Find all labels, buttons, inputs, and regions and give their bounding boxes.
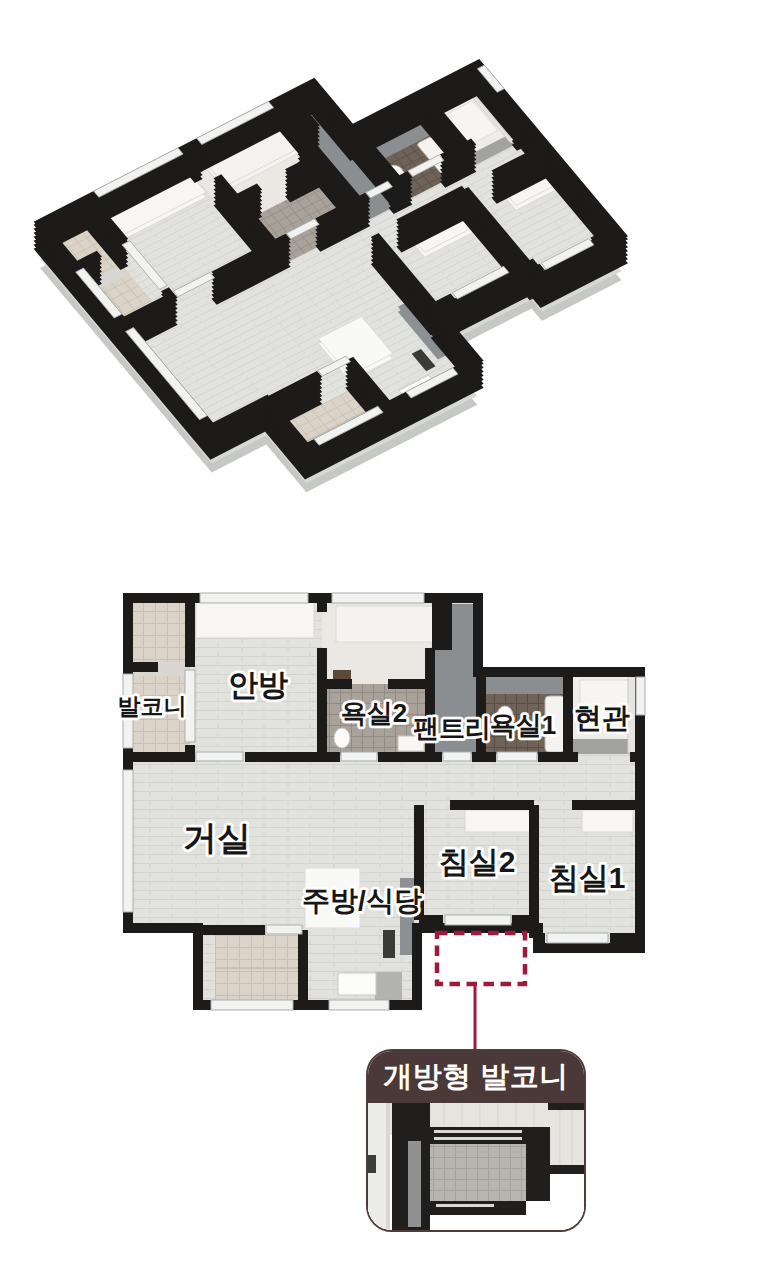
floorplan-3d [34, 13, 658, 520]
callout-inset [368, 1103, 584, 1230]
floorplan-2d: 발코니 안방 욕실2 팬트리 욕실1 현관 거실 주방/식당 침실2 침실1 [118, 593, 646, 1010]
room-label-master-bedroom: 안방 [228, 668, 288, 701]
open-balcony-callout: 개방형 발코니 [366, 1049, 586, 1232]
room-label-bathroom-2: 욕실2 [341, 698, 407, 728]
room-label-pantry: 팬트리 [413, 713, 491, 743]
room-label-bathroom-1: 욕실1 [490, 710, 556, 740]
room-label-entrance: 현관 [574, 702, 630, 733]
room-label-kitchen-dining: 주방/식당 [302, 885, 422, 916]
callout-inset-floorplan [368, 1103, 584, 1230]
room-label-balcony: 발코니 [118, 693, 187, 719]
open-balcony-dashed-box [437, 933, 525, 984]
room-label-bedroom-1: 침실1 [549, 861, 626, 894]
callout-title: 개방형 발코니 [368, 1051, 584, 1103]
room-label-bedroom-2: 침실2 [439, 845, 516, 878]
room-label-living-room: 거실 [183, 819, 251, 857]
